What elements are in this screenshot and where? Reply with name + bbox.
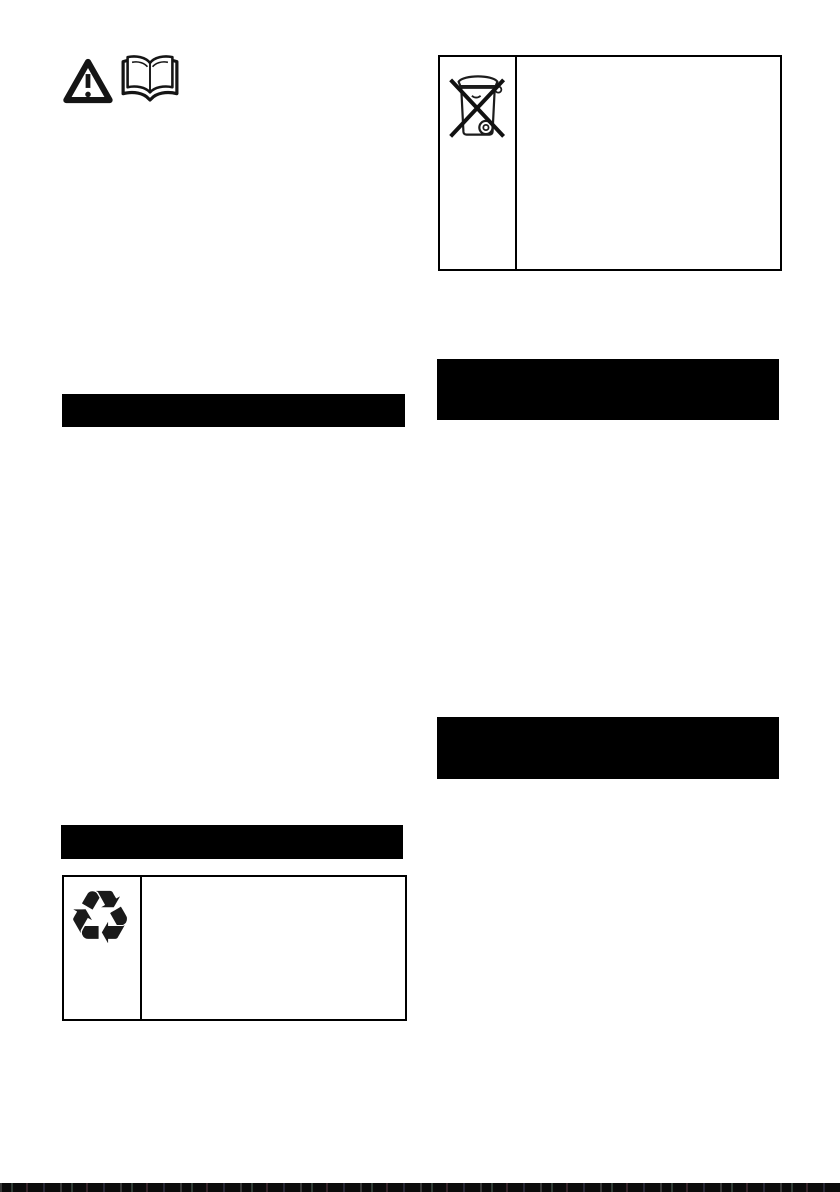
weee-disposal-table bbox=[438, 55, 782, 271]
manual-page: ♻ bbox=[0, 0, 840, 1192]
left-section-heading-1 bbox=[62, 394, 405, 427]
left-section-heading-2 bbox=[61, 825, 403, 859]
safety-icon-row bbox=[62, 48, 182, 111]
right-section-heading-1 bbox=[437, 359, 779, 420]
recycling-table: ♻ bbox=[62, 875, 407, 1021]
page-scan-edge-strip bbox=[0, 1183, 840, 1192]
warning-triangle-icon bbox=[62, 56, 114, 111]
recycling-description-cell bbox=[142, 877, 405, 1019]
weee-symbol-cell bbox=[440, 57, 517, 269]
read-manual-icon bbox=[118, 48, 182, 111]
recycling-symbol-cell: ♻ bbox=[64, 877, 142, 1019]
weee-description-cell bbox=[517, 57, 780, 269]
right-section-heading-2 bbox=[437, 717, 779, 779]
weee-crossed-out-bin-icon bbox=[448, 69, 508, 154]
recycling-icon: ♻ bbox=[67, 881, 133, 955]
